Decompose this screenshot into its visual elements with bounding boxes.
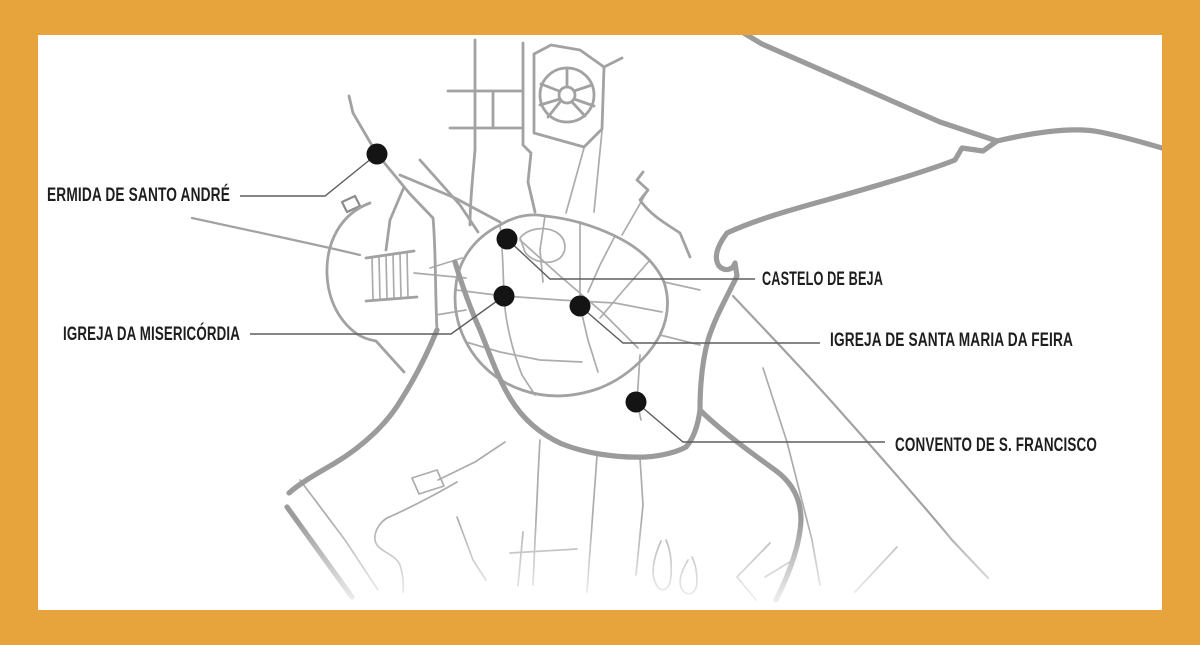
poi-dot-igreja-de-santa-maria-da-feira <box>570 296 591 317</box>
poi-label-ermida-de-santo-andre: ERMIDA DE SANTO ANDRÉ <box>47 184 230 206</box>
poi-dot-igreja-da-misericordia <box>494 286 515 307</box>
poi-label-igreja-de-santa-maria-da-feira: IGREJA DE SANTA MARIA DA FEIRA <box>830 330 1073 351</box>
poi-dot-ermida-de-santo-andre <box>367 144 388 165</box>
poi-label-igreja-da-misericordia: IGREJA DA MISERICÓRDIA <box>63 323 240 345</box>
map-fade <box>38 520 1162 618</box>
poi-label-convento-de-s-francisco: CONVENTO DE S. FRANCISCO <box>895 435 1097 456</box>
poi-dot-convento-de-s-francisco <box>626 392 647 413</box>
poi-label-castelo-de-beja: CASTELO DE BEJA <box>762 269 883 290</box>
framed-map: ERMIDA DE SANTO ANDRÉ CASTELO DE BEJA IG… <box>0 0 1200 645</box>
city-map: ERMIDA DE SANTO ANDRÉ CASTELO DE BEJA IG… <box>0 0 1200 645</box>
poi-dot-castelo-de-beja <box>497 229 518 250</box>
